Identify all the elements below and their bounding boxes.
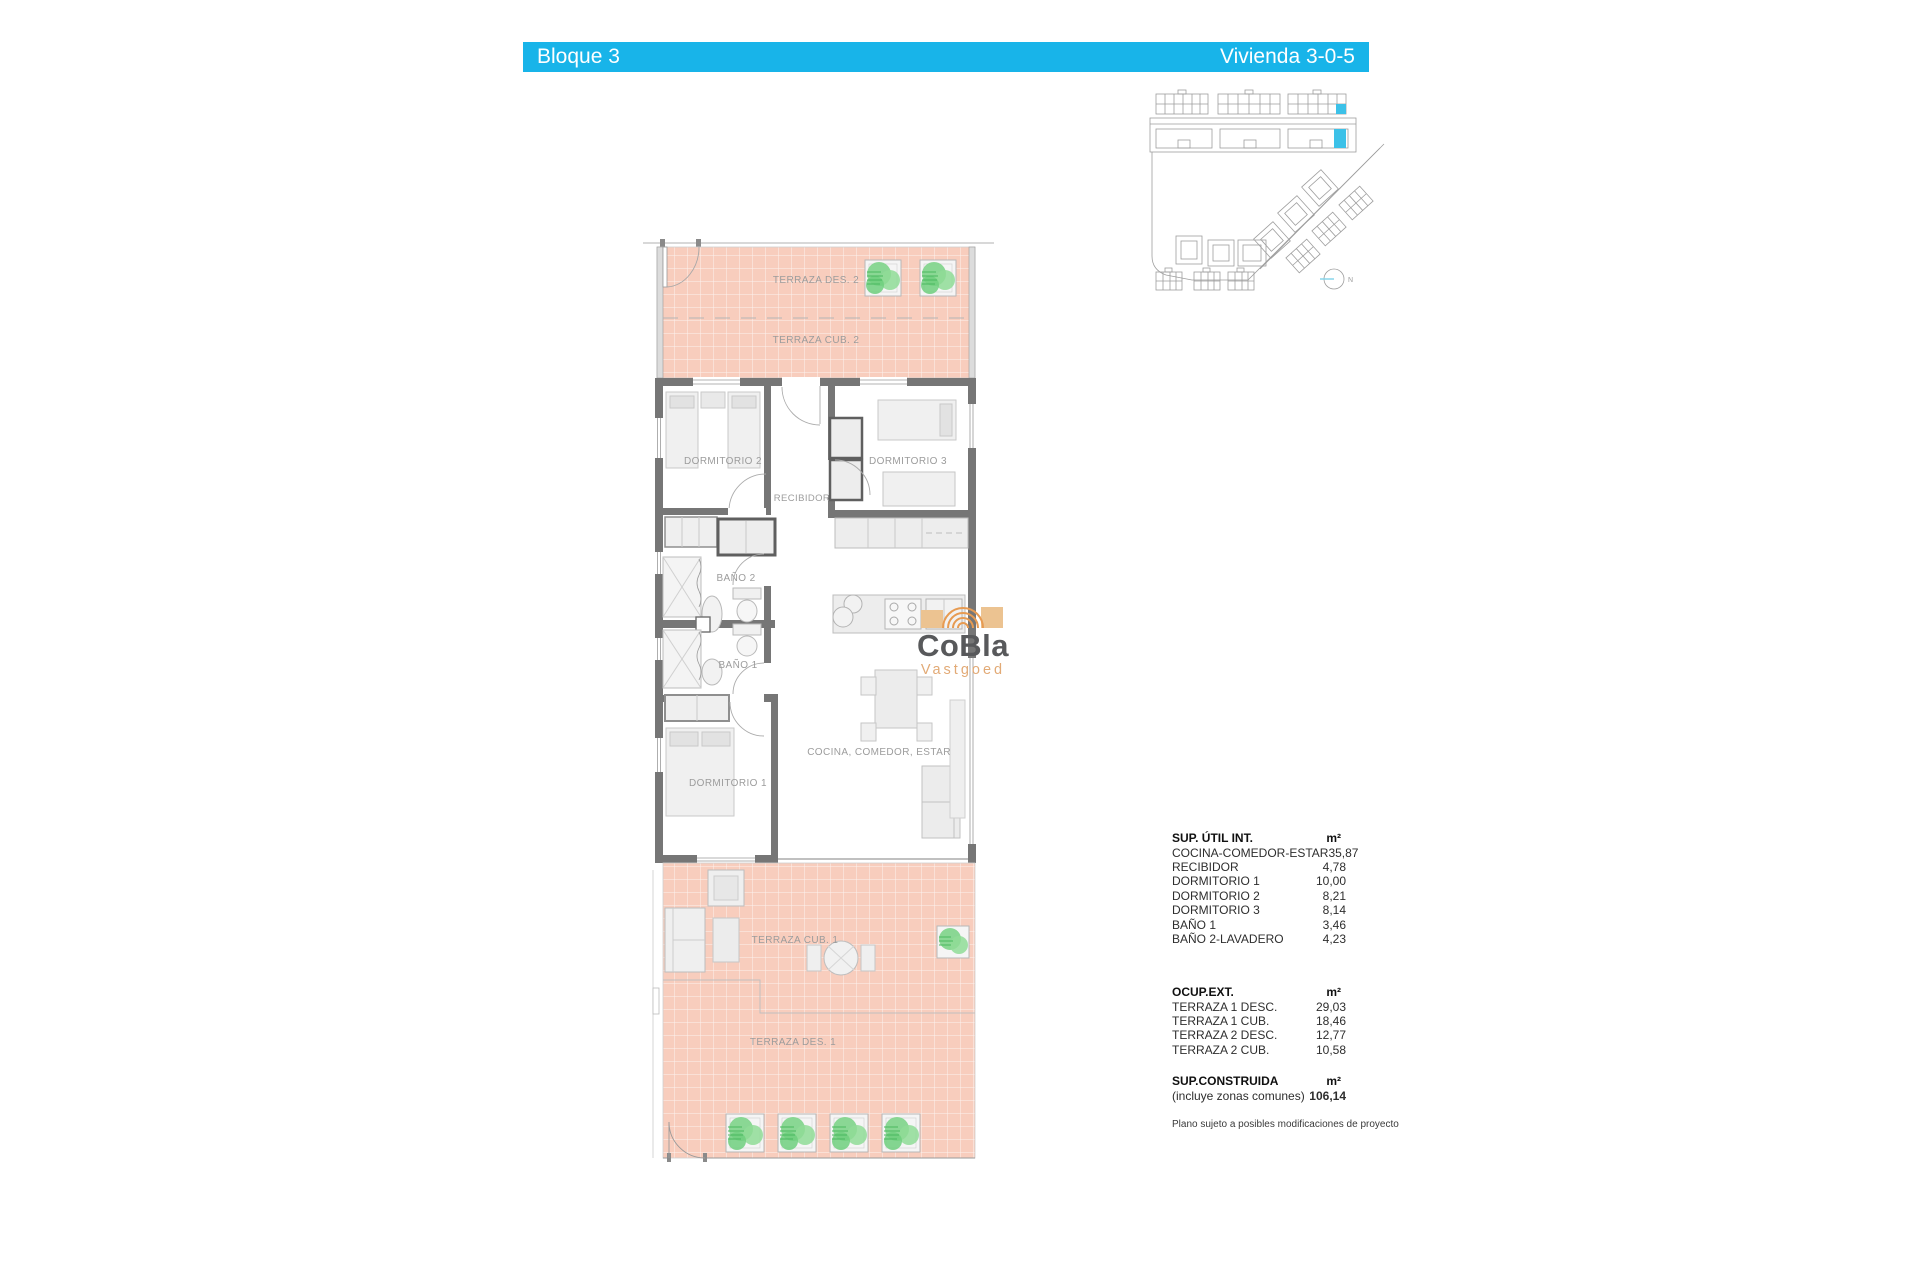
gate-door-leaf (663, 247, 667, 287)
room-dormitorio-2: DORMITORIO 2 (666, 392, 766, 515)
table-section-construida: SUP.CONSTRUIDA m² (incluye zonas comunes… (1172, 1074, 1346, 1103)
watermark-name: CoBla (898, 630, 1028, 661)
table-row: BAÑO 13,46 (1172, 917, 1346, 931)
table-header-row: OCUP.EXT. m² (1172, 985, 1346, 999)
wardrobe (830, 418, 862, 458)
header-bar: Bloque 3 Vivienda 3-0-5 (523, 42, 1369, 72)
building-strip (1150, 118, 1356, 152)
plant-icon (937, 926, 969, 958)
table-row: TERRAZA 2 DESC.12,77 (1172, 1028, 1346, 1042)
section-unit: m² (1326, 1074, 1346, 1088)
row-label: BAÑO 1 (1172, 918, 1216, 932)
watermark-subtitle: Vastgoed (898, 662, 1028, 678)
room-label-bano-2: BAÑO 2 (716, 571, 755, 584)
cobla-logo-icon (921, 598, 1005, 632)
nightstand (701, 392, 725, 408)
house-outline (1176, 236, 1266, 266)
chair (917, 677, 932, 695)
table-section-ocup-ext: OCUP.EXT. m² TERRAZA 1 DESC.29,03 TERRAZ… (1172, 985, 1346, 1057)
site-plan: N (1148, 88, 1438, 313)
plant-icon (920, 260, 956, 296)
row-value: 8,14 (1323, 903, 1346, 917)
table-row: DORMITORIO 38,14 (1172, 903, 1346, 917)
table-row: DORMITORIO 110,00 (1172, 874, 1346, 888)
plant-icon (865, 260, 901, 296)
table-row: COCINA-COMEDOR-ESTAR35,87 (1172, 845, 1346, 859)
gate-post (696, 239, 701, 247)
room-label-cocina: COCINA, COMEDOR, ESTAR (807, 747, 951, 758)
chair (861, 677, 876, 695)
areas-table: SUP. ÚTIL INT. m² COCINA-COMEDOR-ESTAR35… (1172, 831, 1346, 1130)
room-dormitorio-3: DORMITORIO 3 (830, 400, 956, 506)
row-value: 18,46 (1316, 1014, 1346, 1028)
room-label-recibidor: RECIBIDOR (774, 493, 830, 504)
room-label-terraza-cub-2: TERRAZA CUB. 2 (773, 335, 860, 346)
row-value: 4,78 (1323, 860, 1346, 874)
room-label-terraza-cub-1: TERRAZA CUB. 1 (752, 935, 839, 946)
row-value: 4,23 (1323, 932, 1346, 946)
block-title: Bloque 3 (537, 45, 620, 69)
row-label: TERRAZA 2 DESC. (1172, 1028, 1277, 1042)
room-label-terraza-des-2: TERRAZA DES. 2 (773, 275, 859, 286)
dining-table (875, 670, 917, 728)
room-label-terraza-des-1: TERRAZA DES. 1 (750, 1037, 836, 1048)
room-label-dormitorio-3: DORMITORIO 3 (869, 456, 947, 467)
coffee-table (713, 918, 739, 962)
section-title: SUP.CONSTRUIDA (1172, 1074, 1278, 1088)
terrace-wall (969, 247, 975, 378)
room-label-bano-1: BAÑO 1 (718, 658, 757, 671)
unit-title: Vivienda 3-0-5 (1220, 45, 1355, 69)
parking-grid (1156, 90, 1208, 114)
site-plan-lines (1150, 90, 1384, 290)
table-section-sup-util: SUP. ÚTIL INT. m² COCINA-COMEDOR-ESTAR35… (1172, 831, 1346, 946)
row-value: 12,77 (1316, 1028, 1346, 1042)
kitchen-sink (833, 607, 853, 627)
room-bano-1: BAÑO 1 (663, 624, 764, 694)
row-label: (incluye zonas comunes) (1172, 1089, 1305, 1103)
table-row: TERRAZA 2 CUB.10,58 (1172, 1043, 1346, 1057)
section-unit: m² (1326, 985, 1346, 999)
row-label: COCINA-COMEDOR-ESTAR (1172, 846, 1328, 860)
room-cocina-comedor-estar: COCINA, COMEDOR, ESTAR (807, 518, 968, 838)
row-label: DORMITORIO 1 (1172, 874, 1260, 888)
table-row: BAÑO 2-LAVADERO4,23 (1172, 932, 1346, 946)
pillar (653, 988, 659, 1014)
table-row: RECIBIDOR4,78 (1172, 860, 1346, 874)
row-value: 10,00 (1316, 874, 1346, 888)
section-unit: m² (1326, 831, 1346, 845)
room-label-dormitorio-2: DORMITORIO 2 (684, 456, 762, 467)
gate-post (660, 239, 665, 247)
entrance-door (782, 377, 820, 425)
row-value: 29,03 (1316, 1000, 1346, 1014)
toilet (733, 624, 761, 635)
row-label: TERRAZA 2 CUB. (1172, 1043, 1269, 1057)
plant-icon (830, 1114, 868, 1152)
door-arc (729, 474, 766, 511)
window-blind (950, 700, 965, 818)
row-value: 8,21 (1323, 889, 1346, 903)
compass-label: N (1348, 277, 1353, 284)
floor-plan: TERRAZA DES. 2 TERRAZA CUB. 2 (570, 190, 1010, 1180)
wardrobe (665, 517, 717, 547)
row-label: TERRAZA 1 CUB. (1172, 1014, 1269, 1028)
highlighted-unit (1334, 129, 1346, 148)
toilet (733, 588, 761, 599)
highlighted-unit (1336, 104, 1346, 114)
row-label: RECIBIDOR (1172, 860, 1239, 874)
row-label: DORMITORIO 2 (1172, 889, 1260, 903)
table-header-row: SUP.CONSTRUIDA m² (1172, 1074, 1346, 1088)
chair (861, 945, 875, 971)
terrace-wall (657, 247, 663, 378)
row-label: BAÑO 2-LAVADERO (1172, 932, 1284, 946)
row-value: 106,14 (1309, 1089, 1346, 1103)
cobla-watermark: CoBla Vastgoed (898, 598, 1028, 678)
plant-icon (778, 1114, 816, 1152)
row-label: TERRAZA 1 DESC. (1172, 1000, 1277, 1014)
table-header-row: SUP. ÚTIL INT. m² (1172, 831, 1346, 845)
plant-icon (726, 1114, 764, 1152)
terrace-1-floor (663, 863, 975, 1158)
row-value: 3,46 (1323, 918, 1346, 932)
desk (883, 472, 955, 506)
table-row: TERRAZA 1 CUB.18,46 (1172, 1014, 1346, 1028)
table-row: DORMITORIO 28,21 (1172, 889, 1346, 903)
plant-icon (882, 1114, 920, 1152)
door-arc (730, 702, 764, 736)
door-arc (782, 387, 820, 425)
parking-grid (1218, 90, 1280, 114)
room-label-dormitorio-1: DORMITORIO 1 (689, 778, 767, 789)
table-row: TERRAZA 1 DESC.29,03 (1172, 1000, 1346, 1014)
row-value: 10,58 (1316, 1043, 1346, 1057)
chair (861, 723, 876, 741)
chair (917, 723, 932, 741)
section-title: SUP. ÚTIL INT. (1172, 831, 1253, 845)
gate-post (703, 1153, 707, 1162)
parking-grid (1156, 268, 1254, 290)
table-row: (incluye zonas comunes)106,14 (1172, 1088, 1346, 1102)
chair (807, 945, 821, 971)
compass-icon (1320, 269, 1344, 289)
wardrobe (830, 460, 862, 500)
section-title: OCUP.EXT. (1172, 985, 1234, 999)
row-label: DORMITORIO 3 (1172, 903, 1260, 917)
row-value: 35,87 (1328, 846, 1358, 860)
disclaimer-note: Plano sujeto a posibles modificaciones d… (1172, 1119, 1346, 1130)
